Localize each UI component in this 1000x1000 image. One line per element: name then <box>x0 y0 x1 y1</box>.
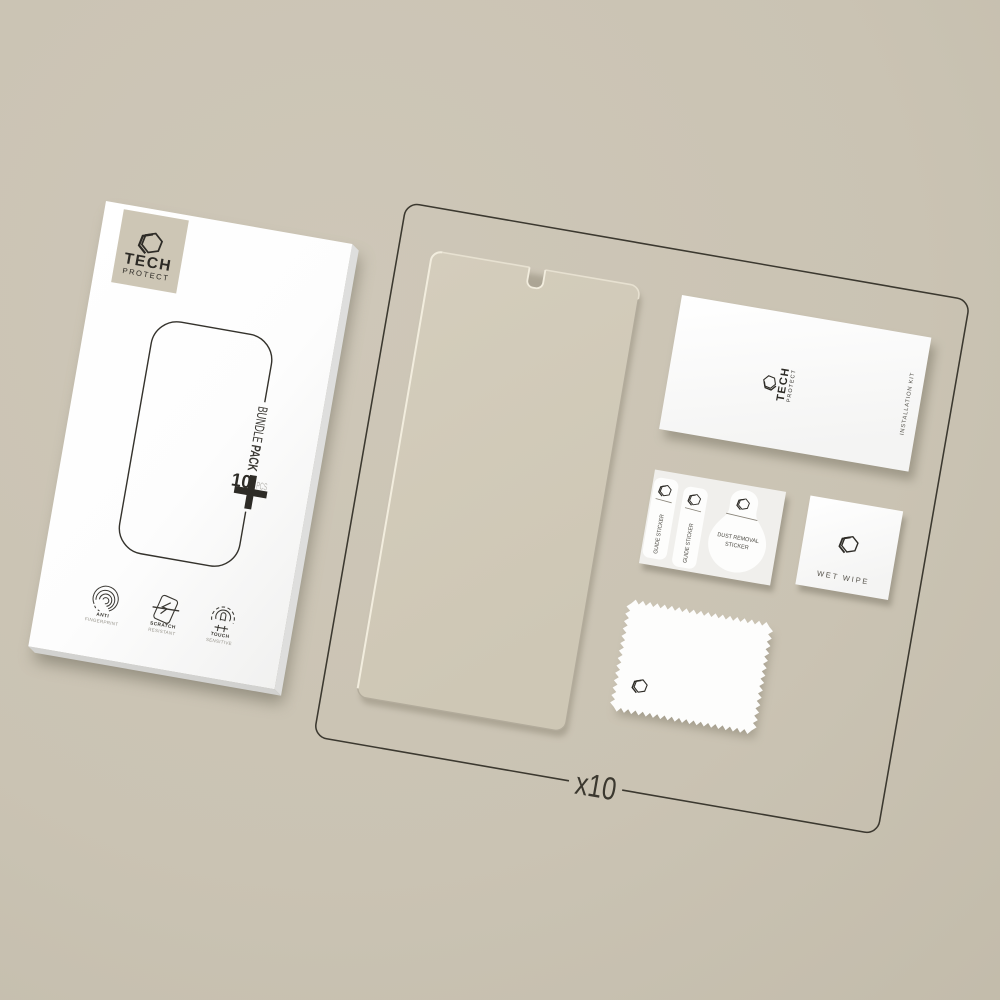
svg-text:x10: x10 <box>573 765 620 807</box>
